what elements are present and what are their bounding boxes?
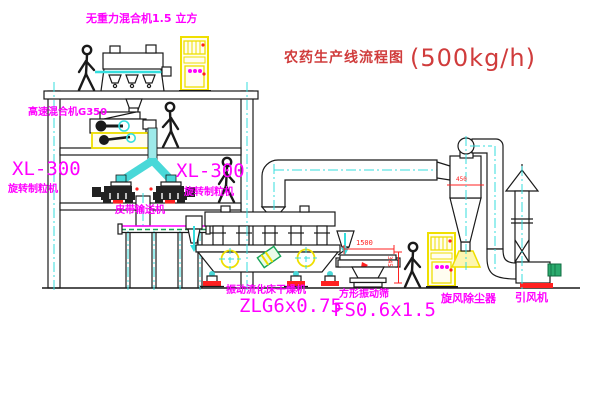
- granulator-right-name-label: 旋转制粒机: [184, 188, 234, 198]
- person-figure: [163, 103, 178, 147]
- cyclone-label: 旋风除尘器: [441, 293, 496, 304]
- cyclone-inlet-dimension: 450: [456, 177, 467, 183]
- granulator-left-drawing: [92, 186, 139, 204]
- belt-conveyor-label: 皮带输送机: [115, 206, 165, 216]
- dryer-inlet-duct-drawing: [262, 160, 437, 214]
- fluid-bed-dryer-drawing: [186, 206, 349, 287]
- page-title: 农药生产线流程图 (500kg/h): [284, 46, 536, 70]
- control-cabinet-bottom: [426, 233, 458, 287]
- person-figure: [405, 243, 420, 287]
- fan-label: 引风机: [515, 292, 548, 303]
- granulator-right-model-label: XL-300: [176, 162, 245, 181]
- sieve-height-dimension: 345: [386, 256, 392, 267]
- granulator-left-model-label: XL-300: [12, 160, 81, 179]
- sieve-width-dimension: 1500: [356, 240, 373, 247]
- flow-diagram-canvas: 农药生产线流程图 (500kg/h) 无重力混合机1.5 立方 高速混合机G35…: [0, 0, 600, 403]
- y-duct-drawing: [111, 158, 181, 186]
- high-speed-mixer-label: 高速混合机G350: [28, 108, 107, 118]
- granulator-left-name-label: 旋转制粒机: [8, 185, 58, 195]
- title-text: 农药生产线流程图: [284, 51, 404, 65]
- control-cabinet-top: [179, 37, 211, 91]
- sieve-model-label: FS0.6x1.5: [333, 301, 436, 320]
- gravity-mixer-drawing: [95, 45, 171, 115]
- person-figure: [79, 46, 94, 90]
- title-capacity: (500kg/h): [410, 46, 536, 70]
- dryer-model-label: ZLG6x0.75: [239, 297, 342, 316]
- gravity-mixer-label: 无重力混合机1.5 立方: [86, 13, 197, 24]
